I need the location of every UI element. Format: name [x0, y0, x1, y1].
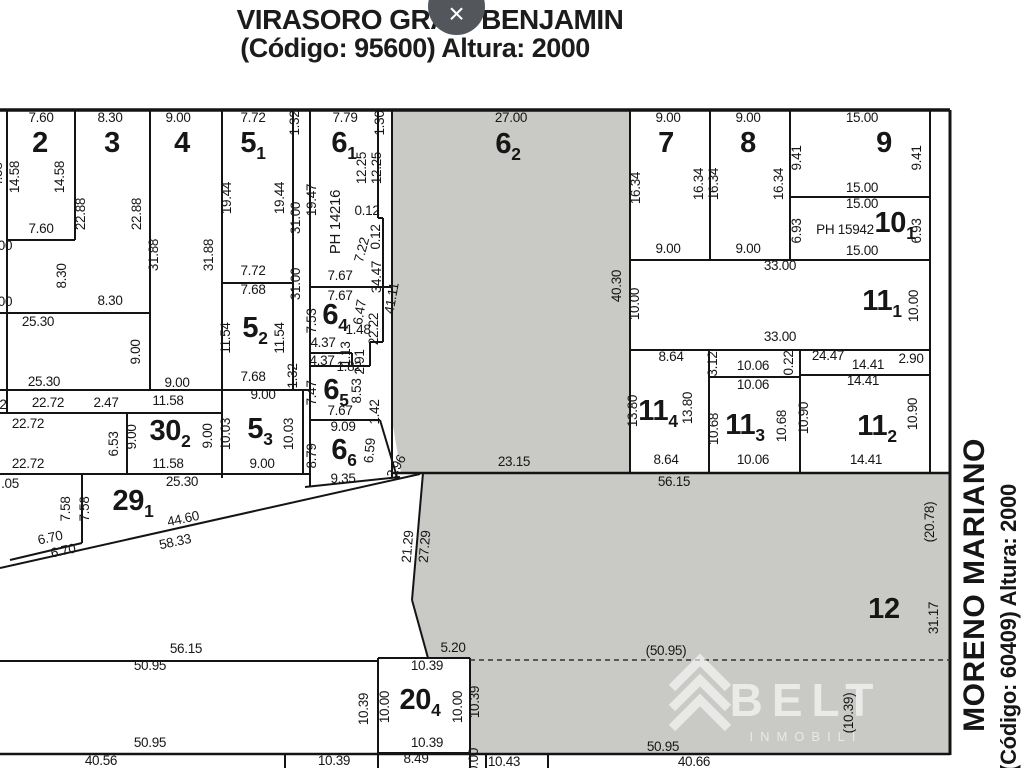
dimension-label: 25.30: [166, 474, 198, 489]
dimension-label: 22.88: [73, 198, 88, 230]
parcel-12-upper[interactable]: [412, 473, 950, 660]
dimension-label: 19.44: [219, 181, 234, 214]
parcel-number-101: 101: [874, 207, 916, 243]
dimension-label: 7.22: [351, 236, 372, 264]
dimension-label: 10.06: [737, 358, 769, 373]
dimension-label: 15.00: [846, 110, 878, 125]
parcel-number-111: 111: [862, 285, 902, 321]
dimension-label: 22.72: [32, 395, 64, 410]
parcel-number-8: 8: [740, 127, 756, 159]
street-name-label: MORENO MARIANO: [958, 438, 991, 732]
dimension-label: 10.68: [774, 410, 789, 442]
parcel-number-3: 3: [104, 127, 120, 159]
dimension-label: 1.30: [372, 110, 387, 135]
dimension-label: 31.88: [146, 239, 161, 271]
dimension-label: 7.72: [240, 263, 265, 278]
parcel-number-66: 66: [331, 434, 357, 470]
dimension-label: 11.58: [152, 456, 183, 471]
dimension-label: 9.00: [200, 423, 215, 448]
dimension-label: 8.49: [403, 751, 428, 766]
dimension-label: 27.29: [416, 530, 434, 563]
dimension-label: 25.30: [22, 314, 54, 329]
dimension-label: 0.22: [781, 350, 796, 375]
dimension-label: 10.00: [627, 288, 642, 320]
parcel-number-65: 65: [323, 374, 349, 410]
dimension-label: (20.78): [922, 502, 937, 543]
dimension-label: 7.72: [240, 110, 265, 125]
dimension-label: 14.41: [852, 357, 884, 372]
parcel-6-2[interactable]: [392, 110, 630, 473]
dimension-label: 33.00: [764, 258, 796, 273]
dimension-label: 19.47: [304, 184, 319, 216]
dimension-label: 15.00: [846, 243, 878, 258]
dimension-label: 31.17: [926, 602, 941, 634]
dimension-label: 7.47: [304, 380, 319, 405]
dimension-label: 31.00: [288, 268, 303, 300]
parcel-number-9: 9: [876, 127, 892, 159]
dimension-label: 10.03: [281, 418, 296, 450]
dimension-label: 10.00: [906, 290, 921, 322]
dimension-label: 1.48: [345, 322, 370, 337]
dimension-label: 2: [0, 397, 7, 412]
dimension-label: 7.58: [77, 496, 92, 521]
dimension-label: 11.58: [152, 393, 183, 408]
dimension-label: 3.12: [705, 351, 720, 376]
dimension-label: 14.41: [847, 373, 879, 388]
dimension-label: 25.30: [28, 374, 60, 389]
dimension-label: 4.37: [309, 353, 334, 368]
dimension-label: 8.64: [658, 349, 684, 364]
dimension-label: 7.60: [28, 110, 53, 125]
dimension-label: 56.15: [658, 474, 690, 489]
parcel-number-61: 61: [331, 127, 357, 163]
dimension-label: 16.34: [706, 167, 721, 200]
dimension-label: 2.90: [898, 351, 923, 366]
dimension-label: 10.39: [318, 753, 350, 768]
dimension-label: 2.47: [93, 395, 118, 410]
dimension-label: 10.00: [450, 691, 465, 723]
dimension-label: 10.03: [218, 418, 233, 450]
parcel-number-7: 7: [658, 127, 674, 159]
dimension-label: 33.00: [764, 329, 796, 344]
parcel-number-4: 4: [174, 127, 190, 159]
parcel-number-64: 64: [322, 299, 348, 335]
parcel-number-302: 302: [149, 415, 190, 451]
dimension-label: 0.12: [354, 203, 379, 218]
dimension-label: 10.39: [356, 693, 371, 725]
dimension-label: 31.88: [201, 239, 216, 271]
dimension-label: 10.06: [737, 452, 769, 467]
dimension-label: 10.90: [905, 398, 920, 430]
dimension-label: 9.00: [165, 110, 190, 125]
dimension-label: 22.72: [12, 456, 44, 471]
parcel-number-204: 204: [399, 684, 441, 720]
map-popup: VIRASORO GRAL. BENJAMIN (Código: 95600) …: [0, 0, 1024, 768]
dimension-label: .05: [1, 476, 19, 491]
dimension-label: 7.68: [240, 282, 265, 297]
dimension-label: 8.30: [97, 110, 122, 125]
dimension-label: 1.32: [285, 363, 300, 388]
dimension-label: 9.00: [735, 110, 760, 125]
dimension-label: 9.00: [128, 339, 143, 364]
dimension-label: 6.93: [789, 218, 804, 243]
dimension-label: 7.67: [327, 268, 352, 283]
dimension-label: 7.60: [28, 221, 53, 236]
parcel-number-12: 12: [868, 593, 900, 625]
parcel-number-113: 113: [725, 409, 765, 445]
dimension-label: 9.09: [330, 419, 355, 434]
dimension-label: 24.47: [812, 348, 844, 363]
dimension-label: 10.39: [411, 735, 443, 750]
parcel-number-53: 53: [247, 413, 273, 449]
dimension-label: 12.25: [369, 152, 384, 184]
dimension-label: 10.06: [737, 377, 769, 392]
dimension-label: 50.95: [134, 658, 166, 673]
dimension-label: 9.41: [909, 145, 924, 170]
watermark-brand: BELT: [730, 674, 883, 726]
dimension-label: 9.00: [249, 456, 274, 471]
dimension-label: 15.00: [846, 196, 878, 211]
dimension-label: 9.41: [789, 145, 804, 170]
dimension-label: 11.54: [272, 322, 287, 354]
dimension-label: 9.00: [164, 375, 189, 390]
watermark-tagline: INMOBILI: [749, 729, 862, 744]
dimension-label: 23.15: [498, 454, 530, 469]
dimension-label: 9.00: [655, 110, 680, 125]
page-subtitle: (Código: 95600) Altura: 2000: [0, 33, 830, 64]
dimension-label: 14.58: [7, 161, 22, 193]
dimension-label: 56.15: [170, 641, 202, 656]
parcel-number-2: 2: [32, 127, 48, 159]
dimension-label: 10.39: [411, 658, 443, 673]
dimension-label: 16.34: [628, 171, 643, 204]
dimension-label: 5.20: [440, 640, 465, 655]
dimension-label: 7.58: [58, 496, 73, 521]
dimension-label: 50.95: [134, 735, 166, 750]
dimension-label: 9.00: [250, 387, 275, 402]
dimension-label: 34.47: [369, 261, 384, 293]
dimension-label: 40.56: [85, 753, 117, 768]
dimension-label: 16.34: [691, 167, 706, 200]
parcel-number-52: 52: [242, 312, 267, 348]
dimension-label: 50.95: [647, 739, 679, 754]
dimension-label: 27.00: [495, 110, 527, 125]
dimension-label: 10.43: [488, 754, 520, 768]
dimension-label: PH 14216: [327, 190, 344, 254]
dimension-label: 7.53: [304, 308, 319, 333]
dimension-label: 44.60: [166, 508, 201, 529]
dimension-label: 31.00: [288, 202, 303, 234]
dimension-label: 7.68: [240, 369, 265, 384]
dimension-label: 13.80: [680, 392, 695, 424]
dimension-label: 8.30: [54, 263, 69, 288]
dimension-label: 8.64: [653, 452, 679, 467]
dimension-label: 10.39: [467, 686, 482, 718]
close-icon: ×: [448, 0, 464, 28]
dimension-label: 6.53: [106, 431, 121, 456]
dimension-label: 9.00: [124, 424, 139, 449]
dimension-label: 00: [0, 294, 12, 309]
dimension-label: 8.30: [97, 293, 122, 308]
dimension-label: 10.00: [466, 748, 481, 768]
dimension-label: PH 15942: [816, 222, 874, 237]
dimension-label: 16.34: [771, 167, 786, 200]
dimension-label: 10.90: [796, 402, 811, 434]
dimension-label: 58.33: [158, 531, 193, 552]
dimension-label: 6.59: [361, 437, 378, 463]
dimension-label: 1.32: [287, 110, 302, 135]
parcel-number-114: 114: [638, 395, 678, 431]
dimension-label: 11.54: [218, 322, 233, 354]
dimension-label: 9.00: [735, 241, 760, 256]
dimension-label: 2.91: [352, 349, 367, 374]
dimension-label: 10.00: [377, 691, 392, 723]
cadastral-map: 4.587.6014.5814.587.60008.30008.3022.882…: [0, 0, 1024, 768]
street-code-label: (Código: 60409) Altura: 2000: [996, 484, 1021, 768]
dimension-label: 10.68: [706, 413, 721, 445]
dimension-label: 00: [0, 238, 12, 253]
dimension-label: 9.35: [330, 471, 355, 486]
dimension-label: 21.29: [399, 530, 417, 563]
parcel-number-291: 291: [112, 485, 154, 521]
dimension-label: (50.95): [646, 643, 687, 658]
dimension-label: 14.41: [850, 452, 882, 467]
parcel-number-112: 112: [857, 410, 896, 446]
dimension-label: 1.42: [367, 399, 382, 424]
dimension-label: 22.88: [129, 198, 144, 230]
parcel-number-51: 51: [240, 127, 266, 163]
dimension-label: 8.79: [304, 443, 319, 468]
dimension-label: 22.72: [12, 416, 44, 431]
dimension-label: 14.58: [52, 161, 67, 193]
dimension-label: 7.79: [332, 110, 357, 125]
dimension-label: 9.00: [655, 241, 680, 256]
dimension-label: 15.00: [846, 180, 878, 195]
dimension-label: 8.53: [349, 378, 364, 403]
dimension-label: 40.30: [609, 270, 624, 302]
dimension-label: 40.66: [678, 754, 710, 768]
dimension-label: 19.44: [272, 181, 287, 214]
dimension-label: 4.58: [0, 162, 5, 187]
dimension-label: 4.37: [310, 335, 335, 350]
